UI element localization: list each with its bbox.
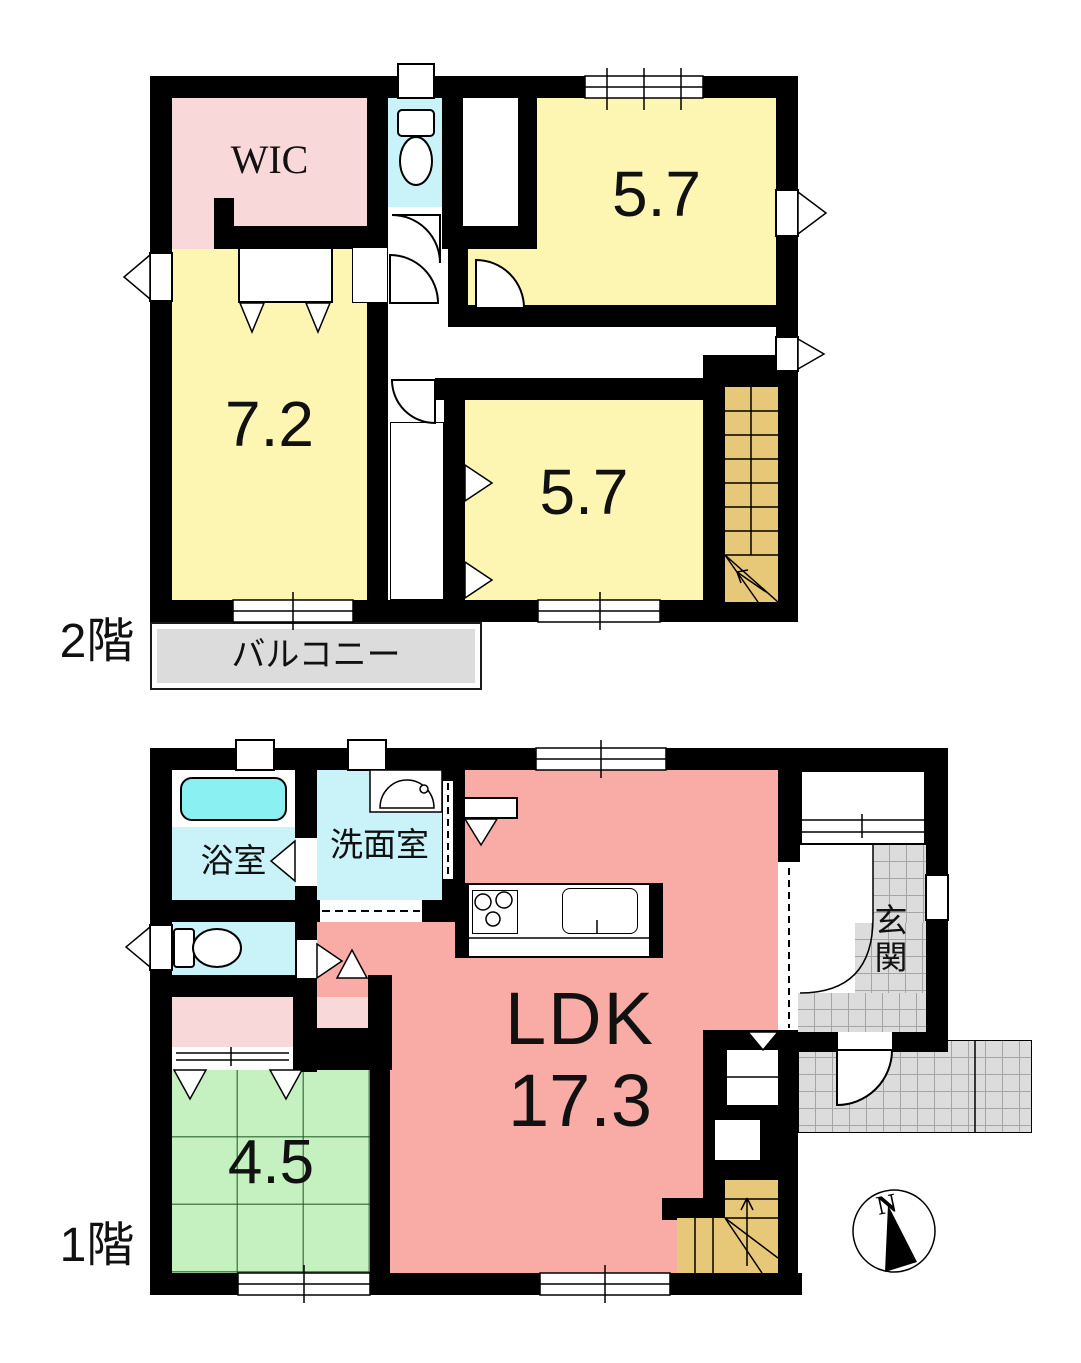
wall: [150, 975, 317, 997]
stove-icon: [472, 890, 518, 934]
floor-plan: 2階 WIC 5.7 7.2 5.7 バルコニー: [0, 0, 1081, 1363]
kitchen-counter-cap: [649, 883, 663, 958]
wall: [778, 770, 800, 862]
room-wic-ext: [172, 226, 214, 249]
closet-1f-a-slide: [172, 1047, 293, 1070]
wall: [444, 400, 465, 600]
room-toilet-2f: [388, 98, 442, 207]
closet-2f-hall-b: [352, 247, 388, 303]
window-casement-swing: [124, 255, 150, 299]
room-5-7-top-label: 5.7: [537, 162, 776, 226]
wall: [442, 98, 463, 247]
wall: [214, 198, 234, 226]
genkan-tile: [798, 993, 926, 1032]
wall: [150, 748, 172, 1295]
compass-north-label: N: [874, 1187, 900, 1221]
wall: [435, 378, 703, 400]
room-wic-label: WIC: [172, 140, 367, 180]
wall: [150, 600, 798, 622]
stairs-2f: [725, 387, 778, 602]
wall: [926, 748, 948, 1052]
closet-5-7-bottom: [390, 422, 444, 600]
floor2-label: 2階: [42, 618, 152, 666]
room-5-7-bottom-label: 5.7: [465, 460, 703, 524]
wall: [150, 76, 172, 622]
wall: [214, 226, 374, 249]
closet-1f-b: [315, 997, 368, 1028]
closet-1f-a: [172, 997, 293, 1047]
closet-2f-hall: [238, 247, 333, 303]
room-ldk-area-label: 17.3: [420, 1064, 740, 1138]
balcony-label: バルコニー: [150, 638, 482, 672]
wall: [367, 98, 388, 228]
kitchen-sink-icon: [562, 888, 638, 934]
room-genkan-label: 玄関: [872, 903, 905, 977]
window-casement-swing: [798, 192, 826, 234]
wall: [150, 1273, 802, 1295]
floor1-label: 1階: [42, 1222, 152, 1270]
room-toilet-1f: [172, 922, 295, 975]
room-7-2-label: 7.2: [172, 392, 367, 456]
door-arc-5-7-bottom: [392, 380, 435, 423]
wall: [150, 748, 948, 770]
wall: [448, 249, 468, 327]
shoe-cabinet: [800, 770, 926, 845]
window-casement-swing: [126, 927, 150, 967]
compass-icon: [853, 1190, 935, 1272]
kitchen-counter-cap: [455, 883, 469, 958]
compass-needle: [885, 1205, 917, 1272]
wall-genkan-front: [793, 1032, 948, 1052]
room-ldk-label: LDK: [420, 982, 740, 1056]
bathtub-icon: [180, 777, 287, 821]
wall: [293, 1028, 392, 1070]
door-arc-7-2: [390, 255, 438, 303]
door-arc-wic: [392, 215, 440, 263]
wall: [442, 226, 537, 249]
room-bath-label: 浴室: [172, 844, 295, 877]
wall: [662, 1198, 725, 1220]
room-washroom-label: 洗面室: [307, 828, 452, 861]
wall-cabinet: [463, 797, 518, 819]
wall: [370, 1070, 390, 1273]
porch-tile: [798, 1040, 1032, 1133]
window-casement-swing: [798, 339, 824, 369]
wall: [468, 305, 776, 327]
wall: [518, 98, 537, 247]
room-tatami-label: 4.5: [172, 1132, 370, 1194]
room-5-7-top-foot: [468, 249, 537, 305]
stairs-1f-landing: [677, 1218, 778, 1273]
wall: [150, 76, 798, 98]
wall: [150, 900, 465, 922]
